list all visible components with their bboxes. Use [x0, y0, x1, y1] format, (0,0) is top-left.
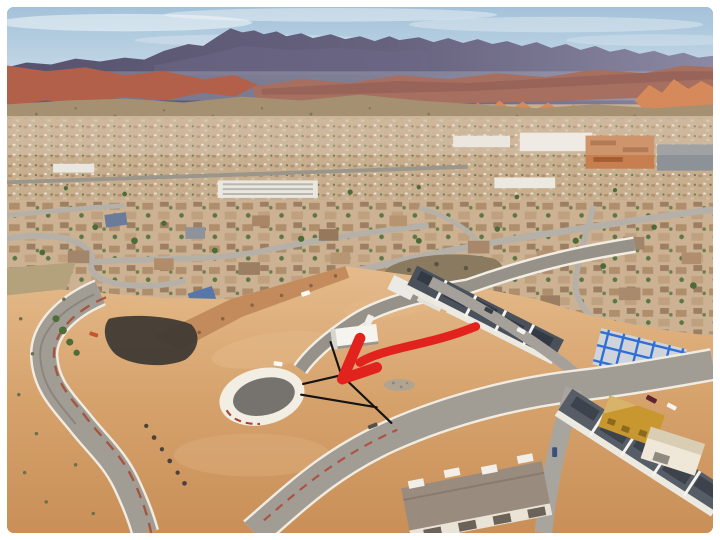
gravel-pile [384, 379, 415, 391]
strip-mall [494, 177, 555, 188]
town-valley [7, 116, 713, 206]
screenshot [0, 0, 720, 540]
aerial-photo [7, 7, 713, 533]
commercial-building [53, 164, 94, 173]
photo-frame [0, 0, 720, 540]
car [552, 447, 557, 457]
